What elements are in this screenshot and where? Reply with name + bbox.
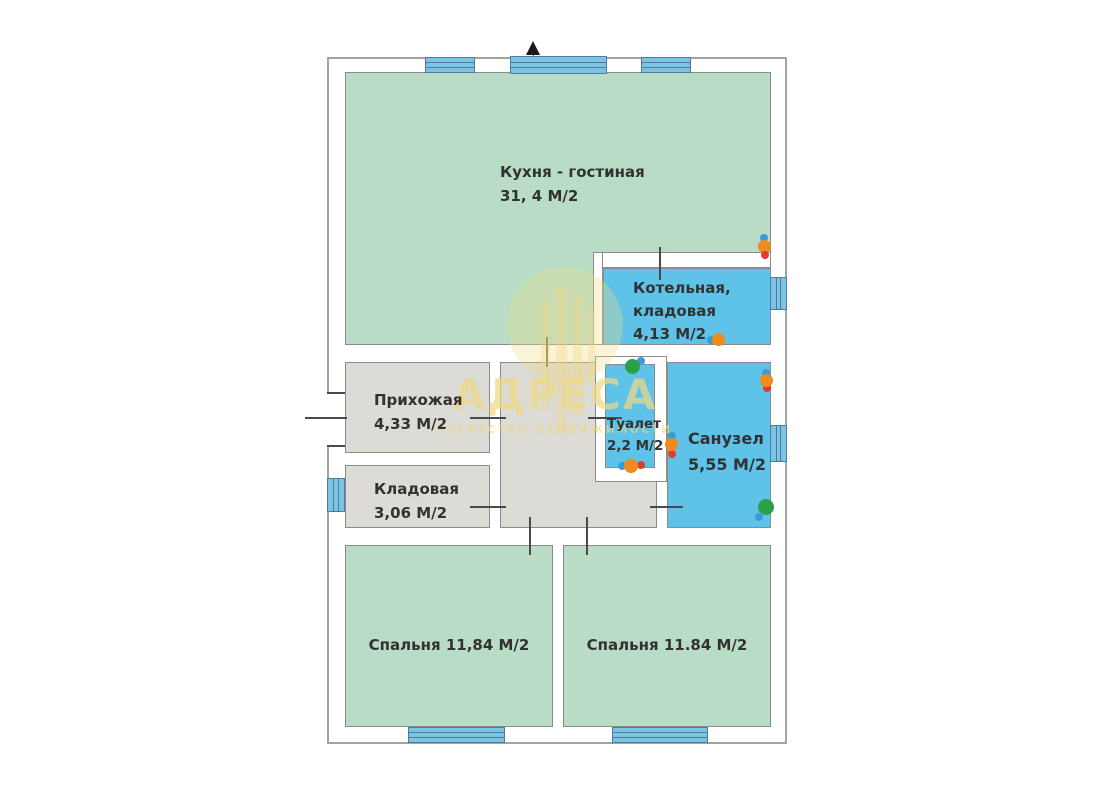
window-icon-top-3 [641, 57, 691, 73]
label-boiler-line1: Котельная, [633, 277, 731, 300]
window-icon-top-2 [510, 56, 607, 74]
label-boiler-area: 4,13 М/2 [633, 323, 731, 346]
label-bathroom: Санузел 5,55 М/2 [688, 426, 766, 478]
window-icon-right-boiler [770, 277, 787, 310]
label-bedroom-1: Спальня 11,84 М/2 [345, 633, 553, 657]
fixture-dot-red [761, 251, 769, 259]
label-toilet-name: Туалет [607, 413, 663, 435]
window-icon-top-1 [425, 57, 475, 73]
fixture-dot-orange [665, 438, 678, 451]
entrance-door-line [305, 417, 347, 419]
label-bathroom-name: Санузел [688, 426, 766, 452]
label-hallway-name: Прихожая [374, 388, 462, 412]
label-kitchen-name: Кухня - гостиная [500, 160, 645, 184]
door-opening-boiler [659, 247, 661, 280]
label-boiler: Котельная, кладовая 4,13 М/2 [633, 277, 731, 346]
entrance-door-frame-top [327, 392, 345, 394]
fixture-dot-red [668, 450, 676, 458]
window-icon-bottom-2 [612, 727, 708, 743]
label-toilet-area: 2,2 М/2 [607, 435, 663, 457]
entrance-door-gap [327, 394, 345, 445]
label-kitchen: Кухня - гостиная 31, 4 М/2 [500, 160, 645, 208]
label-storage: Кладовая 3,06 М/2 [374, 477, 459, 525]
label-storage-area: 3,06 М/2 [374, 501, 459, 525]
window-icon-bottom-1 [408, 727, 505, 743]
fixture-dot-green [625, 359, 640, 374]
fixture-dot-red [637, 461, 645, 469]
label-boiler-line2: кладовая [633, 300, 731, 323]
fixture-dot-orange [760, 374, 773, 387]
door-opening-bedroom-2 [586, 517, 588, 555]
wall-boiler-left [593, 252, 603, 345]
label-bedroom-2: Спальня 11.84 М/2 [563, 633, 771, 657]
label-toilet: Туалет 2,2 М/2 [607, 413, 663, 457]
door-opening-storage [470, 506, 506, 508]
fixture-dot-green [758, 499, 774, 515]
entrance-door-frame-bottom [327, 445, 345, 447]
label-hallway-area: 4,33 М/2 [374, 412, 462, 436]
fixture-dot-orange [624, 459, 638, 473]
floor-plan-page: { "plan_type": "floor-plan", "rooms": { … [0, 0, 1116, 800]
door-opening-bathroom [650, 506, 683, 508]
label-storage-name: Кладовая [374, 477, 459, 501]
label-bathroom-area: 5,55 М/2 [688, 452, 766, 478]
window-icon-right-bathroom [770, 425, 787, 462]
door-opening-bedroom-1 [529, 517, 531, 555]
door-opening-kitchen-corridor [546, 337, 548, 367]
label-kitchen-area: 31, 4 М/2 [500, 184, 645, 208]
window-icon-left [327, 478, 345, 512]
door-opening-hallway [470, 417, 506, 419]
label-hallway: Прихожая 4,33 М/2 [374, 388, 462, 436]
wall-boiler-top [593, 252, 771, 268]
north-arrow-icon [526, 41, 540, 55]
